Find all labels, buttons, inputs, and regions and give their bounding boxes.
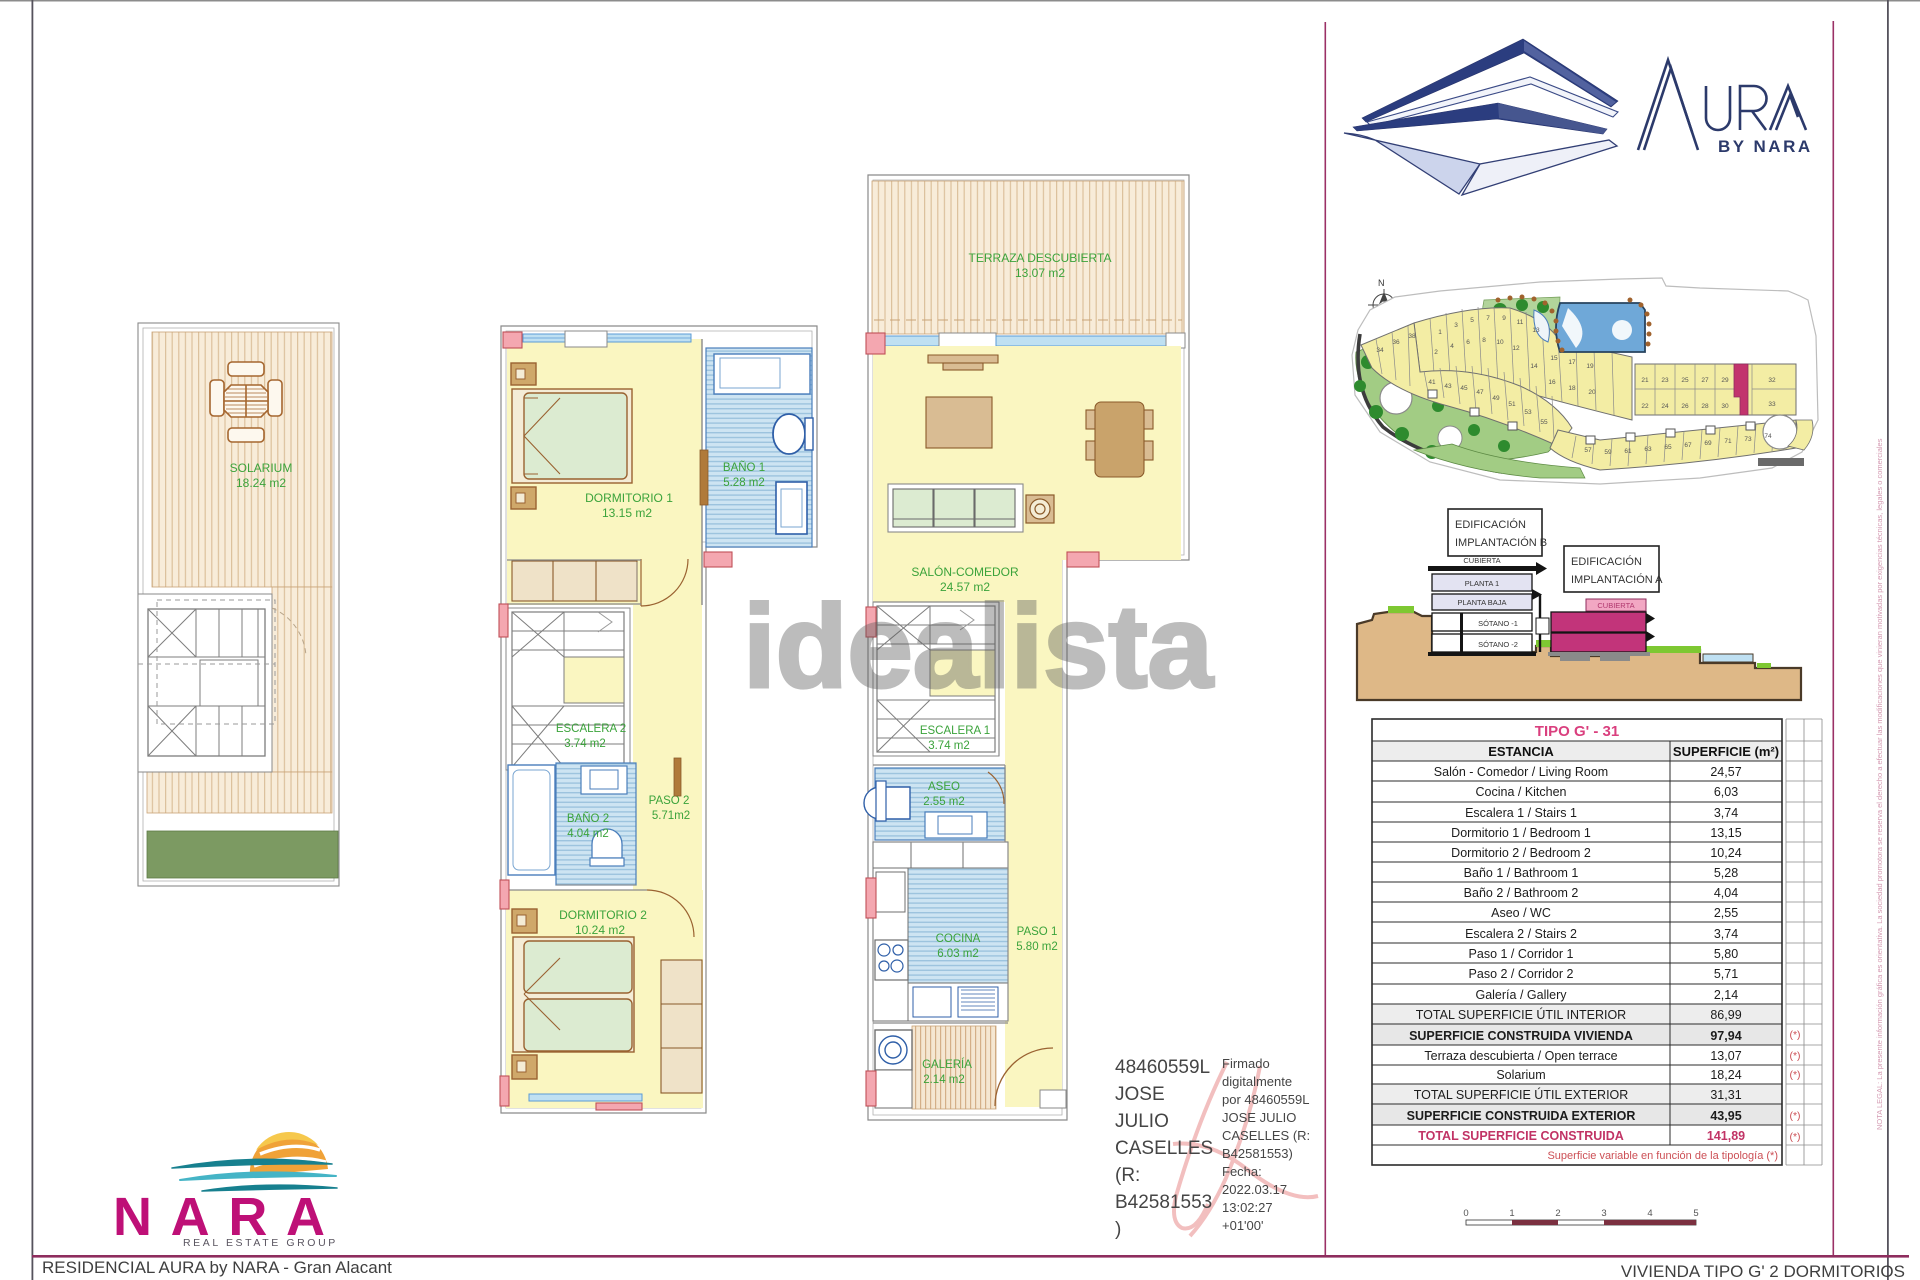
svg-text:CUBIERTA: CUBIERTA: [1597, 601, 1634, 610]
svg-text:TOTAL SUPERFICIE CONSTRUIDA: TOTAL SUPERFICIE CONSTRUIDA: [1418, 1129, 1624, 1143]
svg-text:13: 13: [1532, 327, 1540, 334]
svg-text:4: 4: [1450, 343, 1454, 350]
svg-text:2.55 m2: 2.55 m2: [923, 796, 965, 808]
svg-text:SÓTANO -2: SÓTANO -2: [1478, 640, 1518, 649]
svg-text:TIPO G' - 31: TIPO G' - 31: [1535, 723, 1619, 740]
svg-text:B42581553): B42581553): [1222, 1146, 1293, 1161]
svg-text:SÓTANO -1: SÓTANO -1: [1478, 619, 1518, 628]
svg-text:5.28 m2: 5.28 m2: [723, 477, 765, 489]
svg-text:65: 65: [1664, 444, 1672, 451]
svg-text:JULIO: JULIO: [1115, 1111, 1169, 1132]
svg-text:22: 22: [1641, 403, 1649, 410]
svg-text:3: 3: [1454, 322, 1458, 329]
svg-text:NOTA LEGAL: La presente inform: NOTA LEGAL: La presente información gráf…: [1875, 438, 1884, 1130]
svg-text:PASO 2: PASO 2: [649, 795, 690, 807]
svg-text:31,31: 31,31: [1710, 1088, 1741, 1102]
svg-text:Terraza descubierta / Open ter: Terraza descubierta / Open terrace: [1424, 1049, 1617, 1063]
svg-text:REAL ESTATE GROUP: REAL ESTATE GROUP: [183, 1237, 338, 1249]
svg-text:14: 14: [1530, 363, 1538, 370]
svg-text:34: 34: [1376, 347, 1384, 354]
svg-text:SUPERFICIE CONSTRUIDA VIVIENDA: SUPERFICIE CONSTRUIDA VIVIENDA: [1409, 1029, 1633, 1043]
svg-text:3,74: 3,74: [1714, 927, 1738, 941]
svg-text:4,04: 4,04: [1714, 886, 1738, 900]
svg-text:7: 7: [1486, 315, 1490, 322]
svg-text:TOTAL SUPERFICIE ÚTIL EXTERIOR: TOTAL SUPERFICIE ÚTIL EXTERIOR: [1414, 1087, 1629, 1102]
svg-text:28: 28: [1701, 403, 1709, 410]
svg-text:B42581553: B42581553: [1115, 1192, 1212, 1213]
svg-text:SUPERFICIE (m²): SUPERFICIE (m²): [1673, 744, 1779, 759]
svg-text:DORMITORIO 2: DORMITORIO 2: [559, 908, 647, 922]
svg-text:1: 1: [1509, 1208, 1514, 1219]
svg-text:19: 19: [1586, 363, 1594, 370]
svg-text:25: 25: [1681, 377, 1689, 384]
svg-text:26: 26: [1681, 403, 1689, 410]
svg-text:9: 9: [1502, 315, 1506, 322]
svg-text:CASELLES: CASELLES: [1115, 1138, 1213, 1159]
svg-text:67: 67: [1684, 442, 1692, 449]
svg-text:51: 51: [1508, 401, 1516, 408]
svg-text:VIVIENDA TIPO G' 2 DORMITORI: VIVIENDA TIPO G' 2 DORMITORIOS: [1621, 1262, 1905, 1280]
svg-text:ESCALERA 1: ESCALERA 1: [920, 725, 990, 737]
svg-text:53: 53: [1524, 409, 1532, 416]
svg-text:2.14 m2: 2.14 m2: [923, 1074, 965, 1086]
svg-text:+01'00': +01'00': [1222, 1218, 1263, 1233]
svg-text:): ): [1115, 1219, 1121, 1240]
svg-text:16: 16: [1548, 379, 1556, 386]
svg-text:10,24: 10,24: [1710, 846, 1741, 860]
svg-text:86,99: 86,99: [1710, 1008, 1741, 1022]
svg-text:5,71: 5,71: [1714, 967, 1738, 981]
svg-text:10: 10: [1496, 339, 1504, 346]
svg-text:13.15 m2: 13.15 m2: [602, 506, 652, 520]
svg-text:CUBIERTA: CUBIERTA: [1463, 556, 1500, 565]
svg-text:Firmado: Firmado: [1222, 1056, 1270, 1071]
svg-text:23: 23: [1661, 377, 1669, 384]
svg-text:CASELLES (R:: CASELLES (R:: [1222, 1128, 1310, 1143]
svg-text:Galería / Gallery: Galería / Gallery: [1475, 988, 1567, 1002]
svg-text:SUPERFICIE CONSTRUIDA EXTERIOR: SUPERFICIE CONSTRUIDA EXTERIOR: [1407, 1109, 1636, 1123]
svg-text:13:02:27: 13:02:27: [1222, 1200, 1273, 1215]
svg-text:JOSE: JOSE: [1115, 1084, 1165, 1105]
svg-text:18,24: 18,24: [1710, 1068, 1741, 1082]
svg-text:57: 57: [1584, 447, 1592, 454]
svg-text:74: 74: [1764, 433, 1772, 440]
svg-text:(*): (*): [1789, 1029, 1800, 1041]
svg-text:5: 5: [1470, 317, 1474, 324]
svg-text:63: 63: [1644, 446, 1652, 453]
svg-text:5.80 m2: 5.80 m2: [1016, 941, 1058, 953]
svg-text:21: 21: [1641, 377, 1649, 384]
svg-text:(*): (*): [1789, 1050, 1800, 1062]
svg-text:EDIFICACIÓN: EDIFICACIÓN: [1571, 555, 1642, 568]
svg-text:36: 36: [1392, 339, 1400, 346]
svg-text:Paso 2 / Corridor 2: Paso 2 / Corridor 2: [1469, 967, 1574, 981]
svg-text:15: 15: [1550, 355, 1558, 362]
svg-text:24,57: 24,57: [1710, 765, 1741, 779]
svg-text:49: 49: [1492, 395, 1500, 402]
svg-text:SALÓN-COMEDOR: SALÓN-COMEDOR: [911, 564, 1019, 579]
svg-text:0: 0: [1463, 1208, 1468, 1219]
svg-text:13,15: 13,15: [1710, 826, 1741, 840]
svg-text:5.71m2: 5.71m2: [652, 810, 690, 822]
svg-text:11: 11: [1517, 319, 1524, 326]
svg-text:(R:: (R:: [1115, 1165, 1140, 1186]
svg-text:RESIDENCIAL AURA by NARA - G: RESIDENCIAL AURA by NARA - Gran Alacant: [42, 1258, 392, 1277]
svg-text:141,89: 141,89: [1707, 1129, 1745, 1143]
svg-text:TERRAZA DESCUBIERTA: TERRAZA DESCUBIERTA: [969, 251, 1112, 265]
svg-text:BY NARA: BY NARA: [1718, 137, 1813, 156]
svg-text:47: 47: [1476, 389, 1484, 396]
svg-text:3.74 m2: 3.74 m2: [564, 738, 606, 750]
svg-text:3,74: 3,74: [1714, 806, 1738, 820]
svg-text:BAÑO 1: BAÑO 1: [723, 461, 765, 474]
svg-text:Dormitorio 2 / Bedroom 2: Dormitorio 2 / Bedroom 2: [1451, 846, 1591, 860]
svg-text:71: 71: [1724, 438, 1732, 445]
svg-text:TOTAL SUPERFICIE ÚTIL INTERIOR: TOTAL SUPERFICIE ÚTIL INTERIOR: [1416, 1007, 1626, 1022]
svg-text:5,28: 5,28: [1714, 866, 1738, 880]
svg-text:ESCALERA 2: ESCALERA 2: [556, 723, 626, 735]
svg-text:JOSE JULIO: JOSE JULIO: [1222, 1110, 1296, 1125]
svg-text:4.04 m2: 4.04 m2: [567, 828, 609, 840]
svg-text:32: 32: [1768, 377, 1776, 384]
svg-text:43,95: 43,95: [1710, 1109, 1741, 1123]
svg-text:18: 18: [1568, 385, 1576, 392]
svg-text:5,80: 5,80: [1714, 947, 1738, 961]
svg-text:Fecha:: Fecha:: [1222, 1164, 1262, 1179]
svg-text:45: 45: [1460, 385, 1468, 392]
svg-text:27: 27: [1701, 377, 1709, 384]
svg-text:COCINA: COCINA: [936, 933, 981, 945]
svg-text:Salón - Comedor / Living Room: Salón - Comedor / Living Room: [1434, 765, 1608, 779]
svg-text:69: 69: [1704, 440, 1712, 447]
svg-text:Solarium: Solarium: [1496, 1068, 1545, 1082]
svg-text:6.03 m2: 6.03 m2: [937, 948, 979, 960]
svg-text:Cocina / Kitchen: Cocina / Kitchen: [1475, 785, 1566, 799]
svg-text:43: 43: [1444, 383, 1452, 390]
svg-text:Paso 1 / Corridor 1: Paso 1 / Corridor 1: [1469, 947, 1574, 961]
svg-text:5: 5: [1693, 1208, 1698, 1219]
svg-text:97,94: 97,94: [1710, 1029, 1741, 1043]
svg-text:BAÑO 2: BAÑO 2: [567, 812, 609, 825]
svg-text:EDIFICACIÓN: EDIFICACIÓN: [1455, 518, 1526, 531]
svg-text:1: 1: [1438, 329, 1442, 336]
svg-text:8: 8: [1482, 337, 1486, 344]
svg-text:(*): (*): [1789, 1131, 1800, 1143]
svg-text:SOLARIUM: SOLARIUM: [230, 461, 293, 475]
svg-text:13.07 m2: 13.07 m2: [1015, 266, 1065, 280]
svg-text:6: 6: [1466, 339, 1470, 346]
svg-text:Aseo / WC: Aseo / WC: [1491, 906, 1551, 920]
svg-text:13,07: 13,07: [1710, 1049, 1741, 1063]
svg-text:Baño 2 / Bathroom 2: Baño 2 / Bathroom 2: [1464, 886, 1579, 900]
svg-text:55: 55: [1540, 419, 1548, 426]
svg-text:digitalmente: digitalmente: [1222, 1074, 1292, 1089]
svg-text:20: 20: [1588, 389, 1596, 396]
svg-text:DORMITORIO 1: DORMITORIO 1: [585, 491, 673, 505]
svg-text:24: 24: [1661, 403, 1669, 410]
svg-text:41: 41: [1428, 379, 1436, 386]
svg-text:2: 2: [1555, 1208, 1560, 1219]
svg-text:Escalera 1 / Stairs 1: Escalera 1 / Stairs 1: [1465, 806, 1577, 820]
svg-text:2,14: 2,14: [1714, 988, 1738, 1002]
svg-text:Dormitorio 1 / Bedroom 1: Dormitorio 1 / Bedroom 1: [1451, 826, 1591, 840]
svg-text:IMPLANTACIÓN A: IMPLANTACIÓN A: [1571, 573, 1663, 586]
svg-text:17: 17: [1568, 359, 1576, 366]
svg-text:12: 12: [1512, 345, 1520, 352]
svg-text:(*): (*): [1789, 1110, 1800, 1122]
svg-text:Escalera 2 / Stairs 2: Escalera 2 / Stairs 2: [1465, 927, 1577, 941]
svg-text:3: 3: [1601, 1208, 1606, 1219]
svg-text:2: 2: [1434, 349, 1438, 356]
svg-text:29: 29: [1721, 377, 1729, 384]
svg-text:PASO 1: PASO 1: [1017, 926, 1058, 938]
svg-text:PLANTA 1: PLANTA 1: [1465, 579, 1499, 588]
svg-text:33: 33: [1768, 401, 1776, 408]
svg-text:PLANTA BAJA: PLANTA BAJA: [1457, 598, 1506, 607]
svg-text:18.24 m2: 18.24 m2: [236, 476, 286, 490]
svg-text:48460559L: 48460559L: [1115, 1057, 1210, 1078]
svg-text:59: 59: [1604, 449, 1612, 456]
svg-text:73: 73: [1744, 436, 1752, 443]
svg-text:IMPLANTACIÓN B: IMPLANTACIÓN B: [1455, 536, 1547, 549]
svg-text:10.24 m2: 10.24 m2: [575, 923, 625, 937]
svg-text:Baño 1 / Bathroom 1: Baño 1 / Bathroom 1: [1464, 866, 1579, 880]
svg-text:38: 38: [1408, 333, 1416, 340]
svg-text:ESTANCIA: ESTANCIA: [1488, 744, 1554, 759]
svg-text:30: 30: [1721, 403, 1729, 410]
svg-text:N: N: [1378, 278, 1385, 288]
svg-text:por 48460559L: por 48460559L: [1222, 1092, 1309, 1107]
svg-text:6,03: 6,03: [1714, 785, 1738, 799]
svg-text:2,55: 2,55: [1714, 906, 1738, 920]
svg-text:3.74 m2: 3.74 m2: [928, 740, 970, 752]
svg-text:4: 4: [1647, 1208, 1652, 1219]
svg-text:Superficie variable en función: Superficie variable en función de la tip…: [1547, 1150, 1778, 1162]
svg-text:2022.03.17: 2022.03.17: [1222, 1182, 1287, 1197]
svg-text:61: 61: [1624, 448, 1632, 455]
svg-text:(*): (*): [1789, 1069, 1800, 1081]
svg-text:GALERÍA: GALERÍA: [922, 1058, 972, 1071]
svg-text:ASEO: ASEO: [928, 781, 960, 793]
svg-text:idealista: idealista: [743, 581, 1214, 713]
